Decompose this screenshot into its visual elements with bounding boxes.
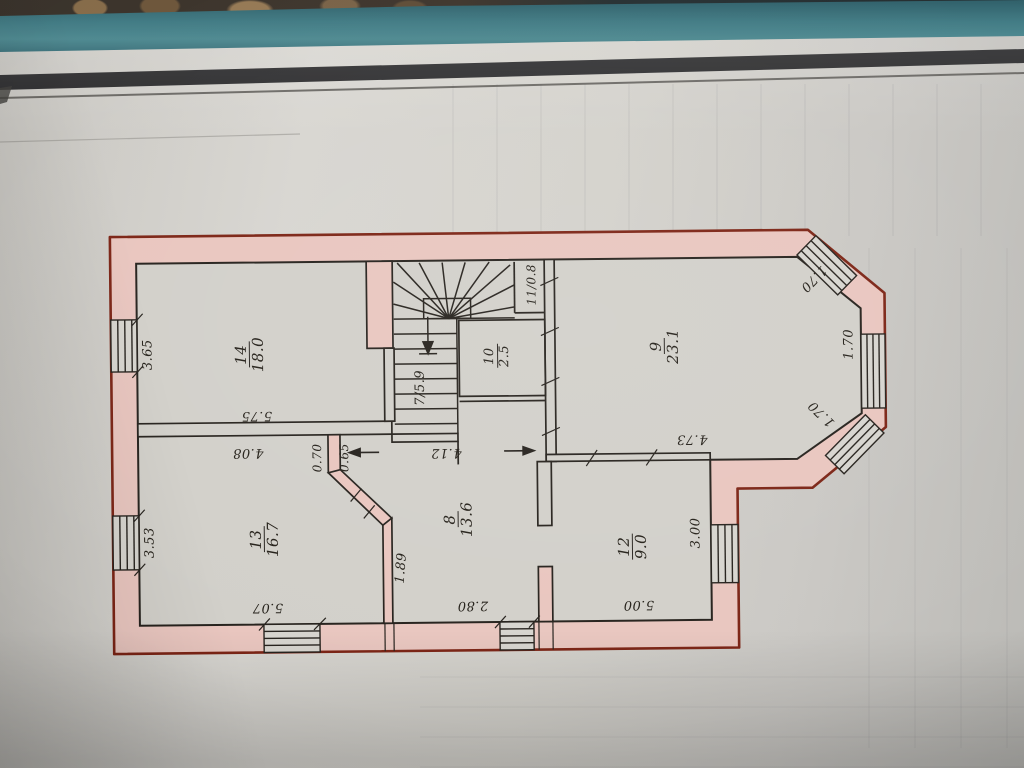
window-bay-right <box>861 334 886 408</box>
window-hall-bottom <box>500 622 534 650</box>
page-rule-band <box>0 49 1024 142</box>
window-room13-left <box>113 516 140 570</box>
window-room13-bottom <box>264 624 320 653</box>
window-room12-right <box>711 525 739 583</box>
window-room14-left <box>111 320 138 372</box>
photo-of-floor-plan: 1418.0 1316.7 813.6 129.0 923.1 102.5 11… <box>0 0 1024 768</box>
floor-plan-drawing <box>0 0 1024 768</box>
